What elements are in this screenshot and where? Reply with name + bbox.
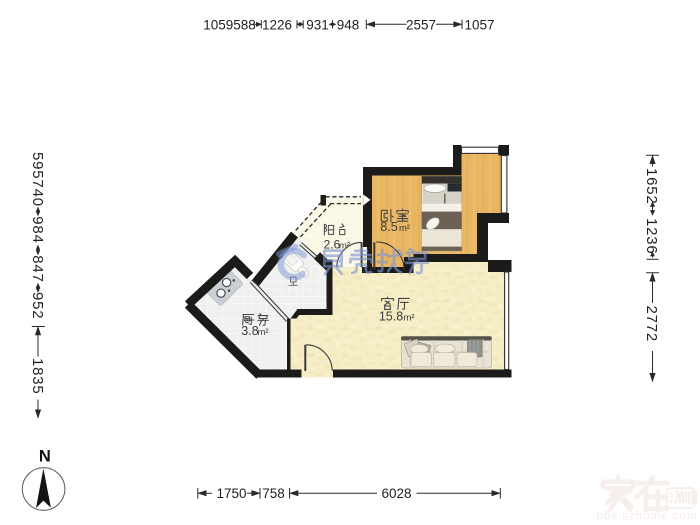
svg-text:1652: 1652 [643, 168, 660, 205]
svg-text:847: 847 [29, 255, 46, 282]
svg-text:6028: 6028 [381, 486, 411, 501]
svg-text:1059588: 1059588 [203, 18, 256, 33]
svg-text:1057: 1057 [464, 18, 494, 33]
svg-text:m²: m² [403, 313, 414, 324]
svg-text:984: 984 [29, 216, 46, 243]
svg-text:8.5: 8.5 [380, 220, 397, 234]
svg-text:2557: 2557 [406, 18, 436, 33]
svg-text:758: 758 [262, 486, 285, 501]
svg-text:bbs.szhome.com: bbs.szhome.com [597, 511, 698, 523]
svg-text:2772: 2772 [643, 306, 660, 343]
svg-text:1750: 1750 [216, 486, 246, 501]
svg-text:m²: m² [399, 223, 410, 234]
svg-text:N: N [39, 448, 51, 466]
svg-text:1835: 1835 [29, 358, 46, 395]
svg-text:595740: 595740 [29, 152, 46, 207]
svg-text:948: 948 [337, 18, 360, 33]
svg-text:931: 931 [306, 18, 329, 33]
svg-text:3.8: 3.8 [241, 324, 258, 338]
svg-text:m²: m² [257, 327, 268, 338]
svg-text:1236: 1236 [643, 218, 660, 255]
svg-text:952: 952 [29, 292, 46, 319]
svg-text:15.8: 15.8 [379, 310, 403, 324]
svg-text:1226: 1226 [262, 18, 292, 33]
